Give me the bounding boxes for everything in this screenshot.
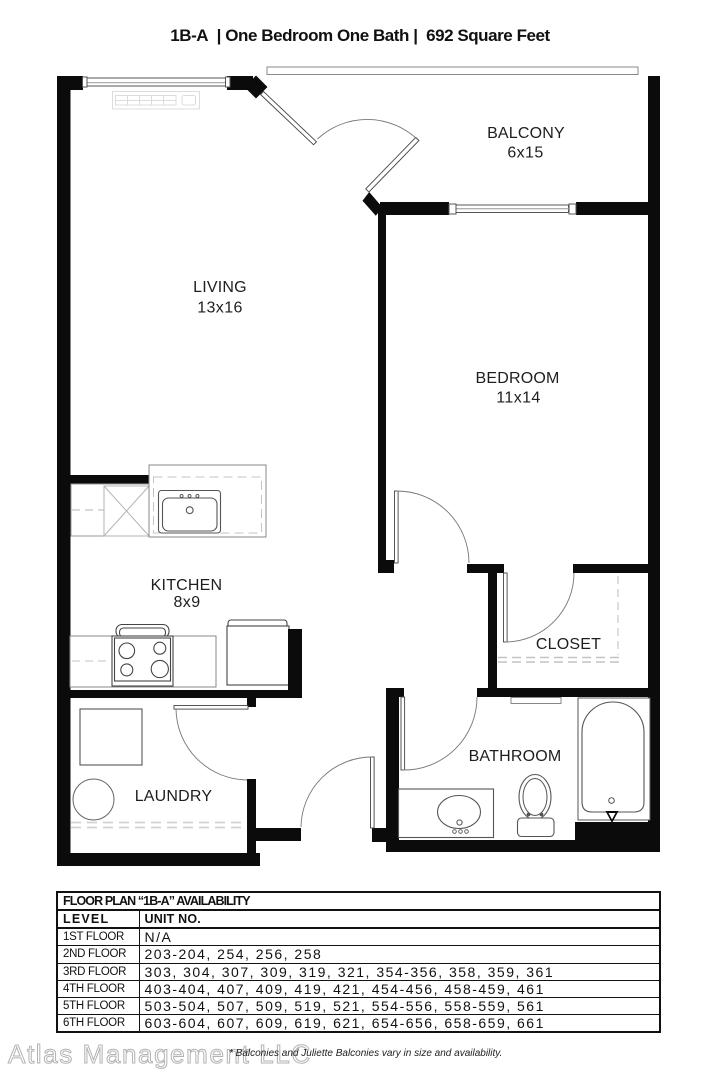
svg-text:KITCHEN: KITCHEN — [151, 577, 223, 594]
svg-text:11x14: 11x14 — [496, 390, 540, 407]
svg-text:6x15: 6x15 — [507, 145, 543, 162]
svg-text:BALCONY: BALCONY — [487, 125, 565, 142]
svg-text:LIVING: LIVING — [193, 279, 247, 296]
svg-text:LAUNDRY: LAUNDRY — [135, 788, 213, 805]
svg-text:13x16: 13x16 — [197, 300, 243, 317]
svg-text:CLOSET: CLOSET — [536, 636, 601, 653]
svg-text:8x9: 8x9 — [174, 594, 201, 611]
svg-text:BATHROOM: BATHROOM — [469, 748, 562, 765]
svg-text:BEDROOM: BEDROOM — [475, 370, 559, 387]
